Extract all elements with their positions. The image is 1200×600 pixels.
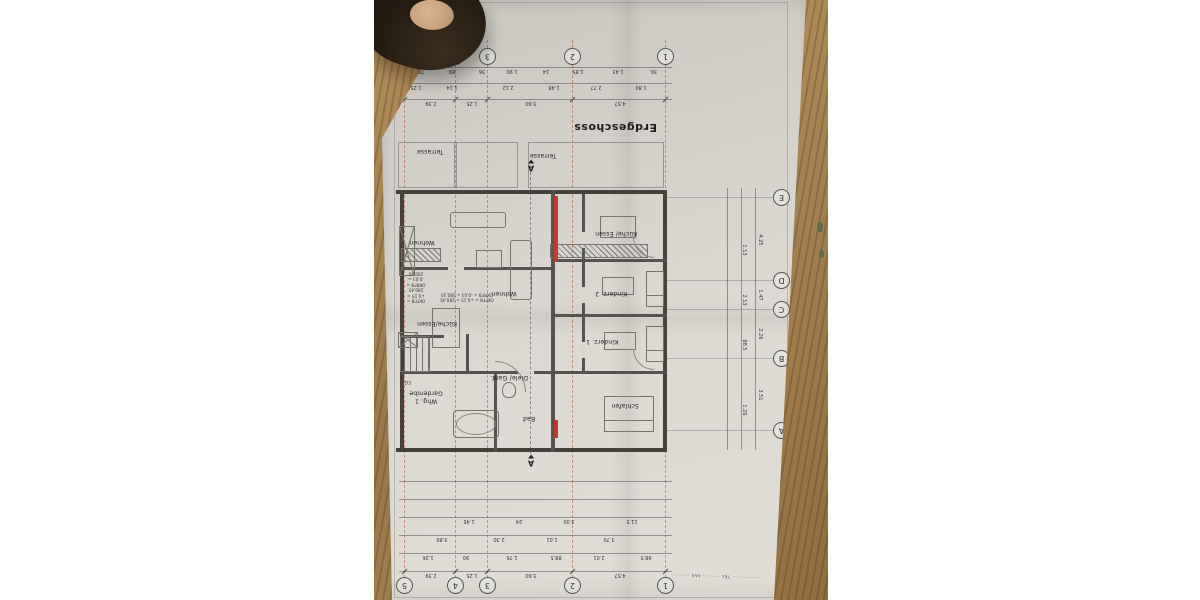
- desk-symbol: [604, 332, 636, 350]
- dim-line-vertical: [741, 188, 742, 450]
- dim-tick: [453, 569, 459, 575]
- floor-level-note: OKFFB = +0,15 = 280,45 OKRFB = -0,03 = 2…: [403, 271, 430, 304]
- dim-tick: [663, 97, 669, 103]
- grid-bubble-A: A: [773, 422, 790, 439]
- exterior-wall: [396, 190, 667, 194]
- tub-symbol: [453, 410, 499, 438]
- dim-number: 1.43: [612, 68, 623, 74]
- photo-of-floor-plan: Erdgeschoss ·· ········ ····· TEL ······…: [374, 0, 828, 600]
- door-opening: [582, 342, 585, 358]
- room-label: Küche/Essen: [417, 319, 457, 327]
- interior-wall: [466, 334, 469, 374]
- interior-wall: [553, 371, 667, 374]
- door-opening: [448, 267, 464, 270]
- xbox-symbol: [399, 226, 415, 276]
- dim-number: 11.5: [626, 518, 637, 524]
- revision-mark: [554, 196, 558, 262]
- dim-number: 2.77: [590, 84, 601, 90]
- dim-line: [399, 83, 672, 84]
- exterior-wall: [400, 190, 404, 452]
- dim-line: [399, 553, 672, 554]
- dim-number: 88.5: [741, 339, 747, 350]
- grid-axis-1: [665, 40, 666, 578]
- interior-wall: [582, 194, 585, 374]
- room-label: Wohnen: [491, 289, 517, 297]
- exterior-wall: [663, 190, 667, 452]
- dim-number: 3.60: [525, 100, 536, 106]
- dim-number: 1.25: [466, 572, 477, 578]
- grid-line-A: [667, 430, 774, 431]
- grid-axis-4: [455, 40, 456, 578]
- door-opening: [582, 287, 585, 303]
- dim-number: 1.26: [741, 404, 747, 415]
- wood-fleck: [819, 250, 824, 258]
- floor-plan-drawing: Erdgeschoss ·· ········ ····· TEL ······…: [389, 0, 804, 600]
- section-marker-a: A: [528, 164, 534, 173]
- desk-symbol: [602, 277, 634, 295]
- room-label: Bad: [523, 414, 535, 422]
- dim-number: 1.25: [410, 84, 421, 90]
- dim-number: 1.01: [546, 536, 557, 542]
- bed-symbol: [646, 271, 664, 307]
- dim-number: 88.5: [550, 554, 561, 560]
- grid-bubble-E: E: [773, 189, 790, 206]
- counter-symbol: [550, 244, 648, 258]
- room-label: Kinderz. 1: [586, 337, 618, 345]
- dim-line-vertical: [755, 188, 756, 450]
- stair-eg-label: EG: [405, 379, 411, 384]
- dim-tick: [570, 569, 576, 575]
- dim-number: 1.76: [506, 554, 517, 560]
- dim-number: 1.45: [463, 518, 474, 524]
- dim-number: 2.01: [593, 554, 604, 560]
- dim-tick: [570, 97, 576, 103]
- dim-number: 3.60: [525, 572, 536, 578]
- dim-number: 1.48: [548, 84, 559, 90]
- dim-number: 89: [449, 68, 455, 74]
- wood-fleck: [817, 222, 823, 232]
- dim-number: 24: [516, 518, 522, 524]
- dim-number: 2.39: [425, 572, 436, 578]
- room-label: Terrasse: [530, 151, 556, 159]
- dim-line: [399, 499, 672, 500]
- section-line: [530, 172, 531, 454]
- dim-number: 3.70: [603, 536, 614, 542]
- room-label: Kinderz. 2: [595, 289, 627, 297]
- dim-number: 36: [479, 68, 485, 74]
- interior-wall: [553, 259, 667, 262]
- terrace-outline: [528, 142, 664, 188]
- interior-wall: [494, 372, 497, 452]
- interior-wall: [401, 335, 444, 338]
- grid-line-B: [667, 358, 774, 359]
- grid-bubble-1: 1: [657, 577, 674, 594]
- grid-axis-3: [487, 40, 488, 578]
- interior-wall: [553, 314, 667, 317]
- dim-number: 2.39: [425, 100, 436, 106]
- revision-mark: [554, 420, 558, 438]
- interior-wall: [401, 267, 551, 270]
- dim-number: 1.47: [757, 289, 763, 300]
- room-label: Schlafen: [611, 401, 638, 409]
- dim-number: 14: [543, 68, 549, 74]
- grid-bubble-1: 1: [657, 48, 674, 65]
- grid-bubble-3: 3: [479, 48, 496, 65]
- dim-line: [399, 99, 672, 100]
- dim-number: 2.26: [757, 328, 763, 339]
- dim-tick: [485, 569, 491, 575]
- dim-tick: [485, 97, 491, 103]
- dim-tick: [402, 97, 408, 103]
- dim-tick: [663, 569, 669, 575]
- dim-line: [399, 517, 672, 518]
- dim-number: 3.80: [436, 536, 447, 542]
- sofa-symbol: [510, 240, 532, 300]
- grid-bubble-D: D: [773, 272, 790, 289]
- dim-number: 1.13: [741, 244, 747, 255]
- wc-symbol: [502, 382, 516, 398]
- dim-number: 90: [463, 554, 469, 560]
- grid-bubble-B: B: [773, 350, 790, 367]
- door-opening: [518, 371, 534, 374]
- section-marker-a: A: [528, 459, 534, 468]
- door-swing-arc: [633, 237, 654, 258]
- terrace-outline: [398, 142, 518, 188]
- grid-axis-2: [572, 40, 573, 578]
- bed-symbol: [604, 396, 654, 432]
- interior-wall: [401, 371, 551, 374]
- dim-number: 4.57: [614, 572, 625, 578]
- grid-line-E: [667, 197, 774, 198]
- plan-title: Erdgeschoss: [574, 121, 657, 134]
- bed-symbol: [646, 326, 664, 362]
- folded-plan-paper: Erdgeschoss ·· ········ ····· TEL ······…: [374, 0, 828, 600]
- desk-symbol: [432, 308, 460, 348]
- dim-line: [399, 535, 672, 536]
- dim-tick: [402, 569, 408, 575]
- grid-bubble-2: 2: [564, 48, 581, 65]
- interior-wall: [551, 190, 555, 452]
- dim-number: 1.80: [635, 84, 646, 90]
- desk-symbol: [476, 250, 502, 268]
- room-label: Whg. 1 Garderobe: [409, 390, 443, 405]
- door-swing-arc: [633, 349, 654, 370]
- architect-fine-print: ·· ········ ····· TEL ········ · FAX ···…: [622, 571, 762, 581]
- grid-bubble-2: 2: [564, 577, 581, 594]
- fingernail: [409, 0, 455, 31]
- room-label: Diele/ Gard.: [490, 373, 528, 381]
- dim-number: 3.00: [563, 518, 574, 524]
- grid-line-C: [667, 309, 774, 310]
- door-swing-arc: [495, 361, 526, 392]
- stairs-symbol: [400, 336, 430, 372]
- dim-number: 4.25: [757, 234, 763, 245]
- grid-bubble-4: 4: [447, 577, 464, 594]
- dim-line: [399, 571, 672, 572]
- grid-bubble-5: 5: [396, 577, 413, 594]
- counter-symbol: [401, 248, 441, 262]
- room-label: Wohnen: [409, 238, 435, 246]
- grid-bubble-3: 3: [479, 577, 496, 594]
- dim-number: 1.14: [446, 84, 457, 90]
- drawing-frame: [394, 2, 788, 598]
- dim-number: 2.30: [493, 536, 504, 542]
- sofa-symbol: [450, 212, 506, 228]
- dim-line: [399, 481, 672, 482]
- terrace-divider: [454, 142, 457, 188]
- screenshot-canvas: Erdgeschoss ·· ········ ····· TEL ······…: [0, 0, 1200, 600]
- dim-number: 4.57: [614, 100, 625, 106]
- door-opening: [582, 232, 585, 248]
- dim-number: 36: [651, 68, 657, 74]
- xbox-symbol: [398, 332, 418, 348]
- dim-number: 2.12: [502, 84, 513, 90]
- dim-tick: [453, 97, 459, 103]
- grid-bubble-C: C: [773, 301, 790, 318]
- dim-number: 3.51: [757, 389, 763, 400]
- dim-line-vertical: [727, 188, 728, 450]
- dim-number: 98.5: [640, 554, 651, 560]
- dim-number: 1.25: [466, 100, 477, 106]
- floor-level-note: OKFFB = +0,15 = 280,45 OKRFB = -0,03 = 2…: [440, 292, 494, 303]
- dim-number: 2.13: [741, 294, 747, 305]
- dim-number: 1.85: [572, 68, 583, 74]
- room-label: Küche/ Essen: [595, 229, 637, 237]
- grid-line-D: [667, 280, 774, 281]
- room-label: Terrasse: [417, 147, 443, 155]
- exterior-wall: [396, 448, 667, 452]
- grid-axis-5: [404, 40, 405, 578]
- desk-symbol: [600, 216, 636, 238]
- dim-number: 1.26: [422, 554, 433, 560]
- dim-number: 1.90: [506, 68, 517, 74]
